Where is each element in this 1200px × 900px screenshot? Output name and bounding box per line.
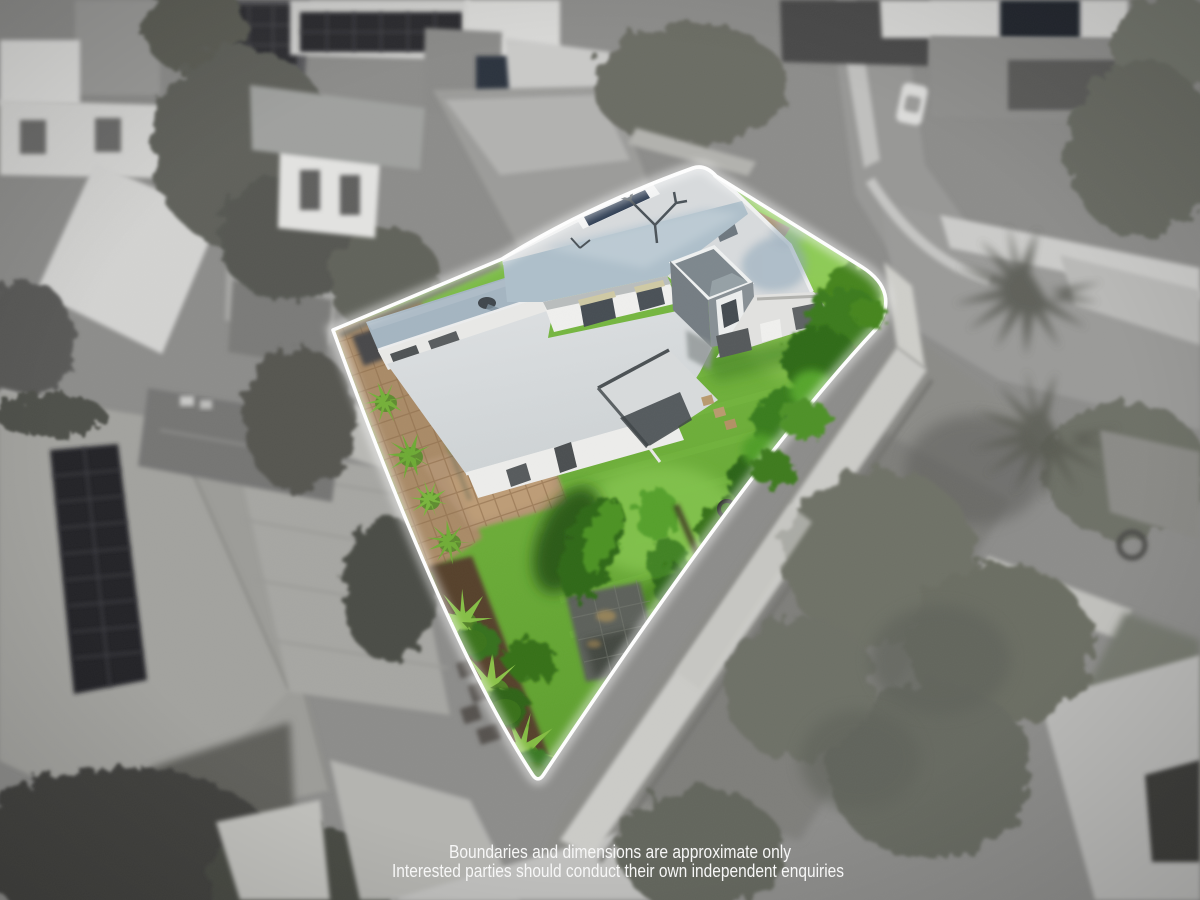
svg-text:Interested parties should cond: Interested parties should conduct their …: [392, 860, 844, 881]
svg-text:Boundaries and dimensions are: Boundaries and dimensions are approximat…: [449, 841, 792, 862]
